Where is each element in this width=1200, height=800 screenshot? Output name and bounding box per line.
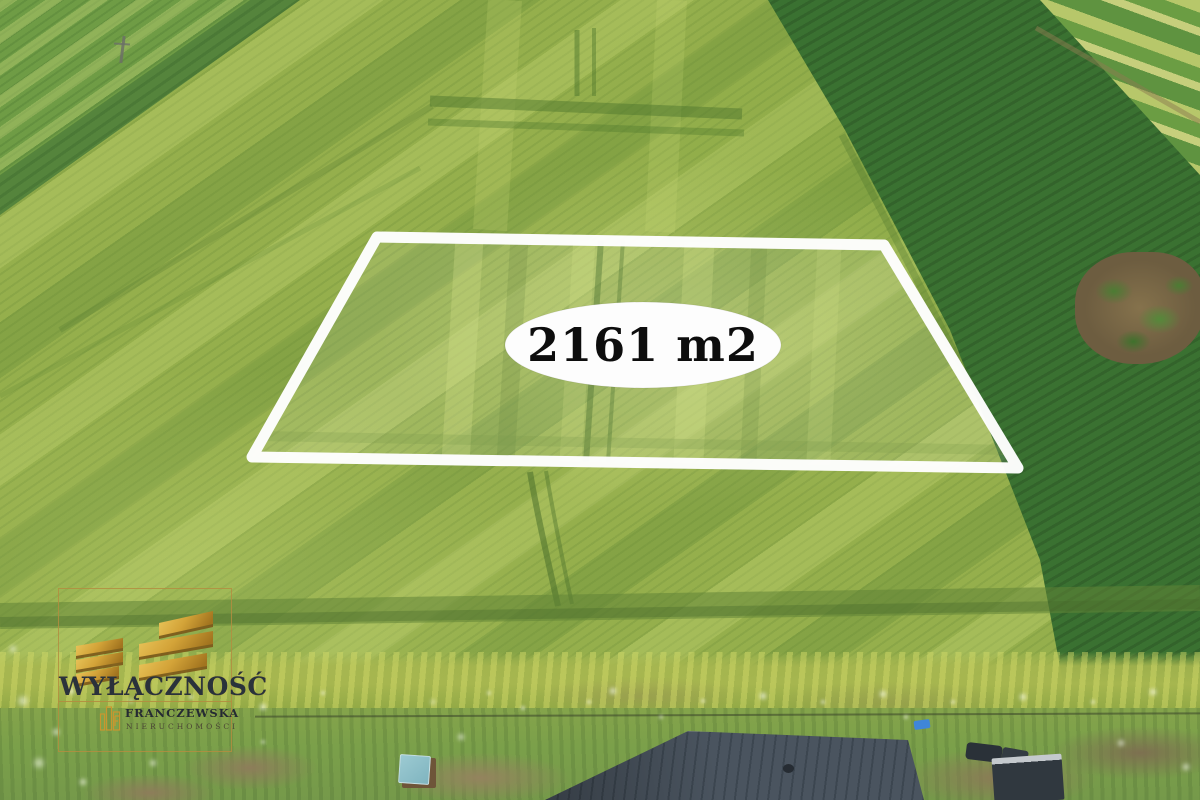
garden-shed-roof xyxy=(398,754,431,785)
logo-bars-right xyxy=(139,611,213,681)
agency-name: FRANCZEWSKA xyxy=(125,706,239,720)
aerial-photo: 2161 m2 xyxy=(0,0,1200,800)
chimney xyxy=(783,764,794,773)
outbuilding-roof xyxy=(991,754,1064,800)
watermark-frame: WYŁĄCZNOŚĆ FRANCZEWSKA NIERUCHOMOŚCI xyxy=(58,588,232,752)
exclusivity-label: WYŁĄCZNOŚĆ xyxy=(59,674,231,700)
agency-logo-icon xyxy=(99,704,121,732)
watermark-divider xyxy=(59,701,231,702)
wildflower-speckles xyxy=(0,0,2,2)
area-label: 2161 m2 xyxy=(527,318,759,372)
agency-subtitle: NIERUCHOMOŚCI xyxy=(126,722,238,731)
